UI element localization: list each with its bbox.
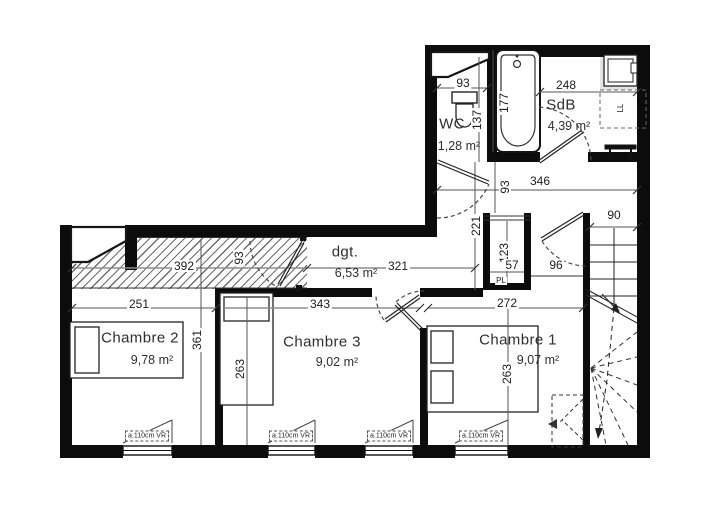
area-label-dgt: 6,53 m² (335, 267, 377, 280)
dim-bath-length: 177 (498, 91, 510, 115)
closet-label: PL (495, 277, 507, 285)
dim-closet-width: 57 (503, 259, 520, 271)
area-label-chambre1: 9,07 m² (517, 354, 559, 367)
window (123, 420, 508, 455)
window-label: a.110cm VR (459, 431, 503, 442)
sink-icon (604, 55, 637, 86)
room-label-chambre2: Chambre 2 (101, 331, 179, 346)
dim-dgt-depth: 221 (470, 214, 482, 238)
dim-hall-length: 346 (528, 175, 552, 187)
dim-hall-width: 93 (499, 178, 511, 195)
roof-window-icon (71, 52, 489, 262)
floor-plan: WC 1,28 m² SdB 4,39 m² dgt. 6,53 m² Cham… (0, 0, 701, 517)
dim-stair-door: 96 (547, 259, 564, 271)
radiator-icon (605, 145, 636, 158)
dim-sdb-width: 248 (554, 79, 578, 91)
dim-dgt-length: 321 (386, 260, 410, 272)
dim-ch1-width: 272 (495, 297, 519, 309)
window-label: a.110cm VR (269, 431, 313, 442)
room-label-chambre3: Chambre 3 (283, 335, 361, 350)
dim-ch1-depth: 263 (501, 362, 513, 386)
dim-ch2-depth: 361 (191, 328, 203, 352)
dim-ch3-depth: 263 (234, 357, 246, 381)
room-label-dgt: dgt. (332, 245, 359, 260)
area-label-wc: 1,28 m² (438, 140, 480, 153)
dim-ch2-width: 251 (127, 298, 151, 310)
room-label-wc: WC (439, 117, 465, 132)
area-label-chambre2: 9,78 m² (131, 354, 173, 367)
area-label-sdb: 4,39 m² (548, 120, 590, 133)
window-label: a.110cm VR (125, 431, 169, 442)
room-label-chambre1: Chambre 1 (479, 333, 557, 348)
dim-wc-width: 93 (454, 77, 471, 89)
area-label-chambre3: 9,02 m² (316, 356, 358, 369)
window-label: a.110cm VR (367, 431, 411, 442)
roof-hatch-outline (548, 395, 583, 447)
staircase (586, 228, 637, 445)
dim-ch2-total: 392 (172, 260, 196, 272)
dim-stair-width: 90 (605, 209, 622, 221)
room-label-sdb: SdB (546, 98, 576, 113)
dim-wc-depth: 137 (471, 108, 483, 132)
dim-ch3-width: 343 (308, 298, 332, 310)
dim-ch2-door: 93 (233, 249, 245, 266)
appliance-label: LL (617, 103, 625, 114)
